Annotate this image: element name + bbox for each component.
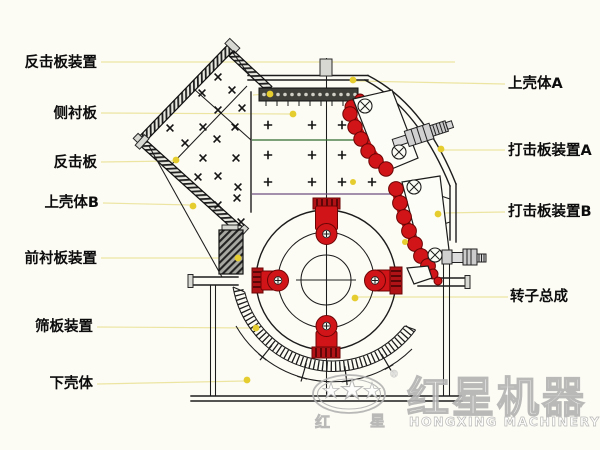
label-upper-housing-a: 上壳体A [508, 74, 563, 92]
blow-bar-bottom [312, 316, 340, 359]
watermark-cn-small-2: 星 [370, 412, 385, 430]
watermark-en-text: HONGXING MACHINERY [409, 414, 600, 429]
watermark-cn-small-1: 红 [315, 413, 330, 431]
label-striking-plate-b: 打击板装置B [508, 202, 592, 220]
registered-mark: ® [389, 369, 399, 380]
blow-bar-left [252, 268, 289, 293]
top-bolt [320, 59, 332, 76]
label-upper-housing-b: 上壳体B [44, 193, 99, 211]
spring-adjuster-b [442, 249, 486, 265]
housing-b-outer-wall [149, 146, 222, 277]
impact-crusher-structure-diagram: 反击板装置 侧衬板 反击板 上壳体B 前衬板装置 筛板装置 下壳体 上壳体A 打… [0, 0, 600, 450]
label-screen-plate-device: 筛板装置 [35, 317, 93, 335]
label-impact-plate-device: 反击板装置 [25, 53, 98, 71]
hongxing-logo-watermark: ® 红星机器 HONGXING MACHINERY 红 星 [313, 369, 600, 431]
label-striking-plate-a: 打击板装置A [508, 141, 592, 159]
part-labels: 反击板装置 侧衬板 反击板 上壳体B 前衬板装置 筛板装置 下壳体 上壳体A 打… [25, 53, 593, 392]
label-lower-housing: 下壳体 [50, 374, 94, 392]
feed-chute-upper-housing-b [133, 38, 272, 277]
front-liner-plate [219, 225, 243, 274]
blow-bar-top [313, 198, 340, 245]
label-side-liner: 侧衬板 [54, 104, 98, 122]
blow-bar-right [365, 267, 403, 294]
label-impact-plate: 反击板 [54, 153, 98, 171]
impact-crusher-diagram-page: 反击板装置 侧衬板 反击板 上壳体B 前衬板装置 筛板装置 下壳体 上壳体A 打… [0, 0, 600, 450]
label-front-liner-device: 前衬板装置 [25, 249, 98, 267]
label-rotor-assembly: 转子总成 [510, 287, 568, 305]
